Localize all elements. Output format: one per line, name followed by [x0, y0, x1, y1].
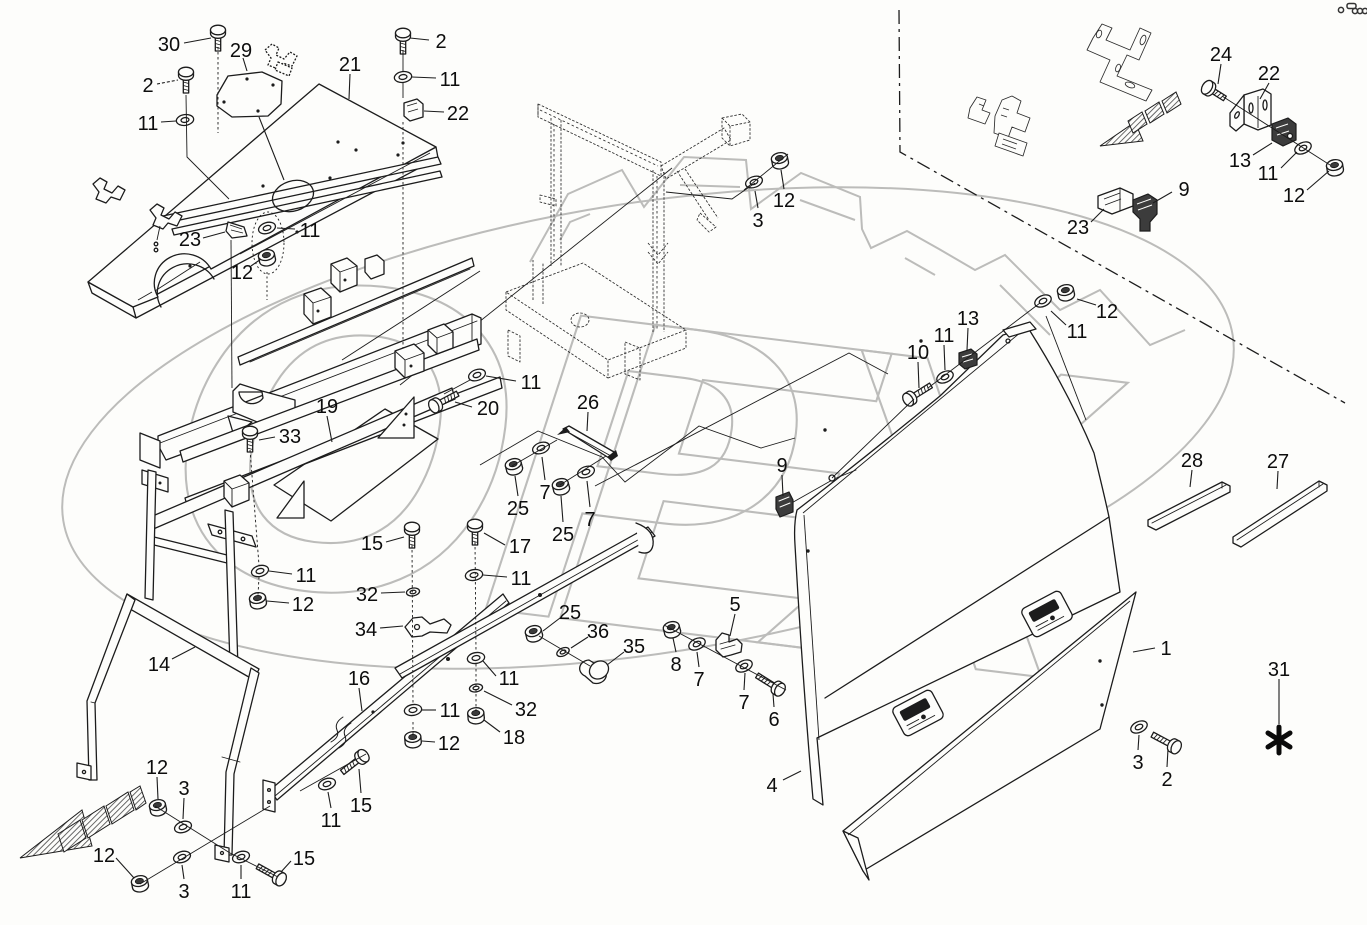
svg-text:2: 2: [1161, 769, 1172, 791]
svg-text:9: 9: [1178, 179, 1189, 201]
svg-text:17: 17: [509, 536, 531, 558]
svg-text:35: 35: [623, 636, 645, 658]
svg-text:23: 23: [179, 229, 201, 251]
svg-text:3: 3: [752, 210, 763, 232]
svg-text:25: 25: [507, 498, 529, 520]
svg-text:18: 18: [503, 727, 525, 749]
svg-text:21: 21: [339, 54, 361, 76]
svg-text:22: 22: [447, 103, 469, 125]
svg-text:32: 32: [515, 699, 537, 721]
svg-text:26: 26: [577, 392, 599, 414]
svg-text:3: 3: [178, 881, 189, 903]
svg-text:2: 2: [142, 75, 153, 97]
svg-text:11: 11: [321, 810, 342, 832]
svg-text:5: 5: [729, 594, 740, 616]
svg-text:19: 19: [316, 396, 338, 418]
svg-text:25: 25: [552, 524, 574, 546]
svg-text:15: 15: [361, 533, 383, 555]
svg-text:12: 12: [1283, 185, 1305, 207]
svg-text:11: 11: [521, 372, 542, 394]
svg-text:22: 22: [1258, 63, 1280, 85]
svg-text:11: 11: [440, 69, 461, 91]
svg-text:12: 12: [773, 190, 795, 212]
svg-text:2: 2: [435, 31, 446, 53]
svg-text:11: 11: [440, 700, 461, 722]
svg-text:9: 9: [776, 455, 787, 477]
svg-text:32: 32: [356, 584, 378, 606]
svg-text:7: 7: [539, 482, 550, 504]
svg-text:15: 15: [350, 795, 372, 817]
svg-text:14: 14: [148, 654, 170, 676]
svg-text:12: 12: [292, 594, 314, 616]
svg-text:31: 31: [1268, 659, 1290, 681]
svg-text:11: 11: [138, 113, 159, 135]
svg-text:11: 11: [231, 881, 252, 903]
svg-text:34: 34: [355, 619, 377, 641]
svg-text:20: 20: [477, 398, 499, 420]
svg-text:29: 29: [230, 40, 252, 62]
svg-text:11: 11: [300, 220, 321, 242]
svg-text:11: 11: [1067, 321, 1088, 343]
svg-text:11: 11: [296, 565, 317, 587]
svg-text:16: 16: [348, 668, 370, 690]
svg-text:25: 25: [559, 602, 581, 624]
svg-text:7: 7: [738, 692, 749, 714]
svg-text:30: 30: [158, 34, 180, 56]
svg-text:4: 4: [766, 775, 777, 797]
svg-text:12: 12: [438, 733, 460, 755]
svg-text:7: 7: [584, 509, 595, 531]
svg-text:8: 8: [670, 654, 681, 676]
svg-text:1: 1: [1160, 638, 1171, 660]
svg-text:13: 13: [1229, 150, 1251, 172]
svg-text:7: 7: [693, 669, 704, 691]
svg-text:11: 11: [1258, 163, 1279, 185]
svg-text:11: 11: [499, 668, 520, 690]
svg-text:10: 10: [907, 342, 929, 364]
svg-text:27: 27: [1267, 451, 1289, 473]
svg-text:13: 13: [957, 308, 979, 330]
svg-text:3: 3: [1132, 752, 1143, 774]
svg-text:24: 24: [1210, 44, 1232, 66]
svg-text:12: 12: [231, 262, 253, 284]
svg-text:23: 23: [1067, 217, 1089, 239]
svg-text:36: 36: [587, 621, 609, 643]
svg-text:3: 3: [178, 778, 189, 800]
svg-text:15: 15: [293, 848, 315, 870]
svg-text:6: 6: [768, 709, 779, 731]
svg-text:11: 11: [511, 568, 532, 590]
svg-text:12: 12: [146, 757, 168, 779]
svg-text:11: 11: [934, 325, 955, 347]
svg-text:33: 33: [279, 426, 301, 448]
svg-text:12: 12: [93, 845, 115, 867]
svg-text:28: 28: [1181, 450, 1203, 472]
svg-text:12: 12: [1096, 301, 1118, 323]
